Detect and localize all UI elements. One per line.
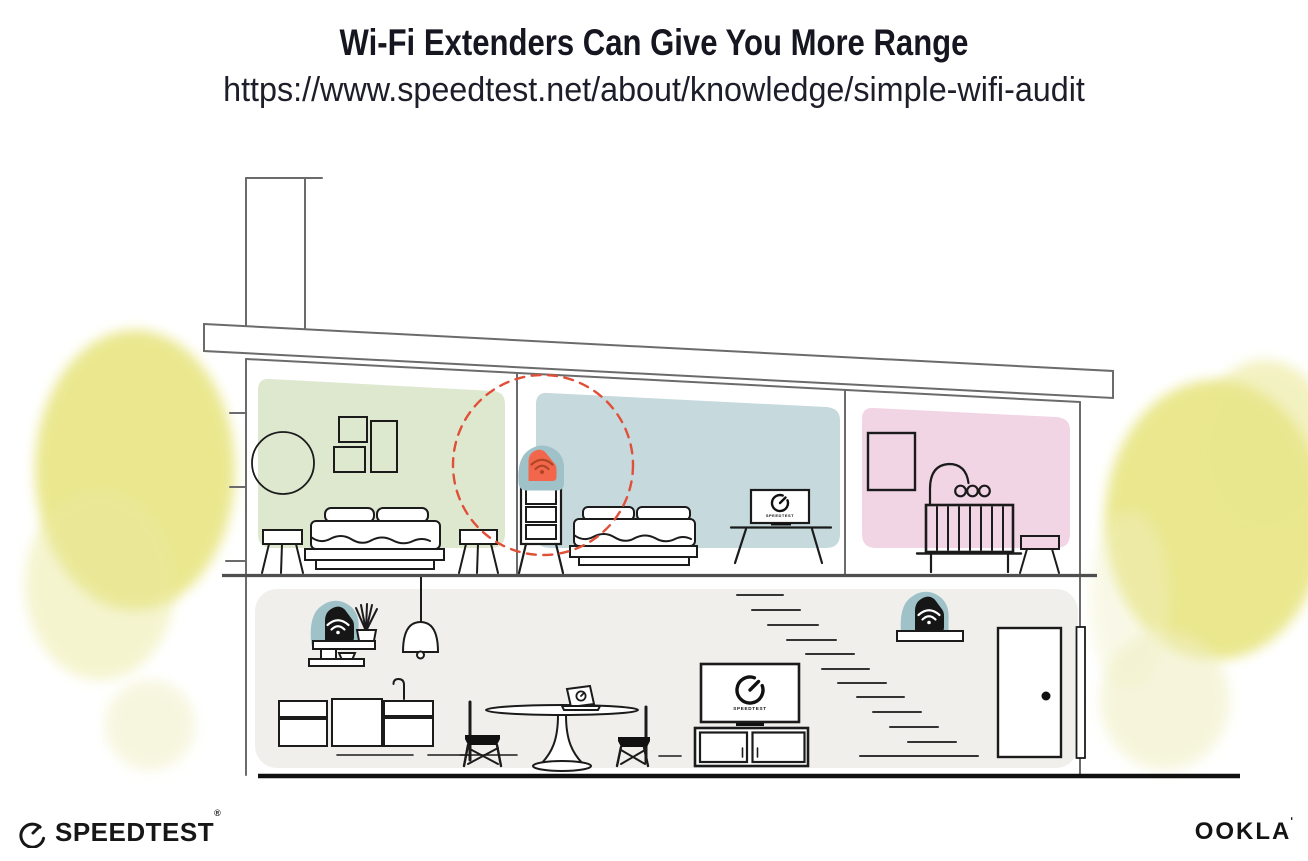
nightstand: [459, 530, 498, 573]
bed: [305, 508, 444, 569]
tv-brand-text: SPEEDTEST: [766, 513, 794, 518]
nightstand: [262, 530, 303, 573]
speedtest-wordmark: SPEEDTEST®: [55, 817, 221, 848]
ookla-trademark-tick: ʹ: [1290, 816, 1295, 828]
tv-brand-text: SPEEDTEST: [733, 706, 767, 711]
registered-mark: ®: [214, 808, 221, 818]
pink-nursery-wall: [862, 408, 1070, 548]
ookla-logo: OOKLA ʹ: [1195, 818, 1296, 846]
wifi-extender-icon: [518, 446, 564, 491]
watercolor-foliage-right: [1090, 360, 1308, 770]
stool: [1020, 536, 1059, 573]
shelf-board: [897, 631, 963, 641]
dresser: [519, 482, 563, 573]
wifi-router-shelf: [311, 601, 377, 650]
bed: [570, 507, 697, 565]
watercolor-foliage-left: [25, 330, 235, 770]
ookla-wordmark: OOKLA: [1195, 818, 1292, 846]
chimney: [246, 178, 322, 330]
wall-column: [1077, 627, 1086, 758]
door: [998, 628, 1061, 757]
speedtest-logo: SPEEDTEST®: [18, 817, 221, 848]
door-knob: [1042, 692, 1051, 701]
shelf-board: [313, 641, 375, 649]
speedtest-gauge-icon: [18, 818, 48, 848]
house-illustration: SPEEDTEST: [0, 0, 1308, 861]
